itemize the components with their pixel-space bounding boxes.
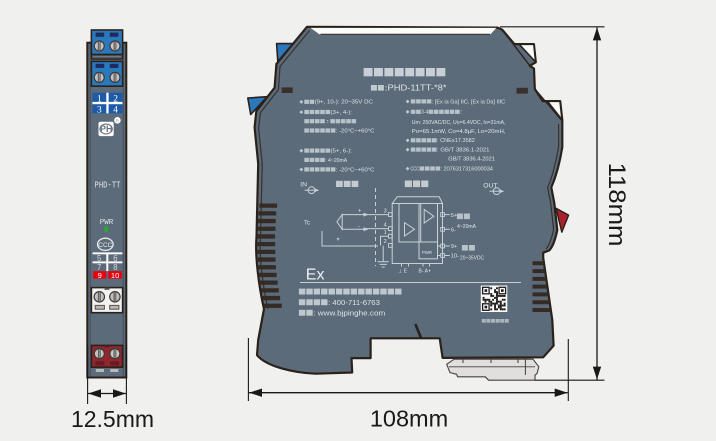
svg-text:10: 10 — [111, 271, 119, 280]
svg-text:CCC: CCC — [98, 242, 112, 249]
svg-text:1: 1 — [97, 94, 102, 104]
svg-text:: 2076317316000034: : 2076317316000034 — [440, 166, 493, 172]
svg-text:5+: 5+ — [451, 213, 457, 219]
svg-text:12.5mm: 12.5mm — [71, 406, 154, 432]
svg-text:2: 2 — [113, 94, 118, 104]
svg-text:1: 1 — [384, 230, 387, 236]
svg-text:5: 5 — [97, 254, 102, 263]
svg-text:108mm: 108mm — [370, 406, 448, 432]
svg-text:6-: 6- — [451, 228, 456, 234]
svg-text:(3+, 4-):: (3+, 4-): — [331, 110, 353, 116]
svg-text:PH: PH — [100, 124, 113, 134]
svg-text:-: - — [358, 224, 360, 230]
svg-text:4: 4 — [113, 105, 118, 115]
svg-text:10-: 10- — [451, 254, 459, 260]
svg-text:Po=65.1mW, Co=4.8µF, Lo=2: Po=65.1mW, Co=4.8µF, Lo=20mH, — [412, 129, 506, 135]
svg-text:3-4: 3-4 — [421, 110, 428, 116]
svg-text::: : — [460, 110, 462, 116]
svg-text:Ex: Ex — [306, 266, 325, 283]
svg-text:: 400-711-6763: : 400-711-6763 — [328, 298, 380, 307]
svg-text:(5+, 6-):: (5+, 6-): — [331, 149, 353, 155]
svg-text:20~35VDC: 20~35VDC — [460, 256, 484, 262]
svg-text:4~20mA: 4~20mA — [457, 224, 476, 230]
svg-text:Tc: Tc — [304, 221, 310, 227]
svg-text:IN: IN — [300, 182, 307, 189]
svg-text:PHD-11TT-*8*: PHD-11TT-*8* — [388, 82, 448, 92]
svg-text:CCC: CCC — [411, 166, 420, 172]
svg-text:GB/T 3836.4-2021: GB/T 3836.4-2021 — [448, 156, 495, 162]
svg-text:B- A+: B- A+ — [419, 269, 431, 275]
svg-text:: CNEx17.3582: : CNEx17.3582 — [437, 138, 475, 144]
svg-text:6: 6 — [113, 254, 117, 263]
svg-text::: : — [325, 119, 330, 125]
svg-text:⊥ E: ⊥ E — [398, 269, 408, 275]
svg-text:PWR: PWR — [422, 250, 432, 255]
svg-text:: GB/T 3836.1-2021: : GB/T 3836.1-2021 — [437, 148, 490, 154]
svg-text:: [Ex ia Ga] IIC, [Ex ia Da] I: : [Ex ia Ga] IIC, [Ex ia Da] IIIC — [432, 99, 506, 105]
svg-text:PWR: PWR — [100, 219, 114, 227]
svg-text:9: 9 — [98, 271, 102, 280]
svg-text:PHD-TT: PHD-TT — [95, 180, 121, 190]
svg-text:3: 3 — [97, 105, 102, 115]
svg-text:: -20°C~+60°C: : -20°C~+60°C — [336, 167, 375, 173]
svg-text:+: + — [358, 209, 362, 215]
svg-text:4: 4 — [384, 222, 387, 228]
svg-text:2: 2 — [384, 239, 387, 245]
svg-text:3: 3 — [384, 208, 387, 214]
svg-text:118mm: 118mm — [603, 163, 630, 247]
svg-text:(9+, 10-): 20~35V DC: (9+, 10-): 20~35V DC — [315, 100, 373, 106]
svg-text:: -20°C~+60°C: : -20°C~+60°C — [336, 128, 375, 134]
svg-text:9+: 9+ — [451, 244, 457, 250]
svg-text:Um: 250VAC/DC, Uo=6.4VDC, Io=3: Um: 250VAC/DC, Uo=6.4VDC, Io=31mA, — [412, 120, 506, 126]
svg-text:: 4~20mA: : 4~20mA — [325, 158, 347, 164]
svg-text:: www.bjpinghe.com: : www.bjpinghe.com — [313, 308, 385, 317]
svg-text:*: * — [337, 237, 340, 246]
